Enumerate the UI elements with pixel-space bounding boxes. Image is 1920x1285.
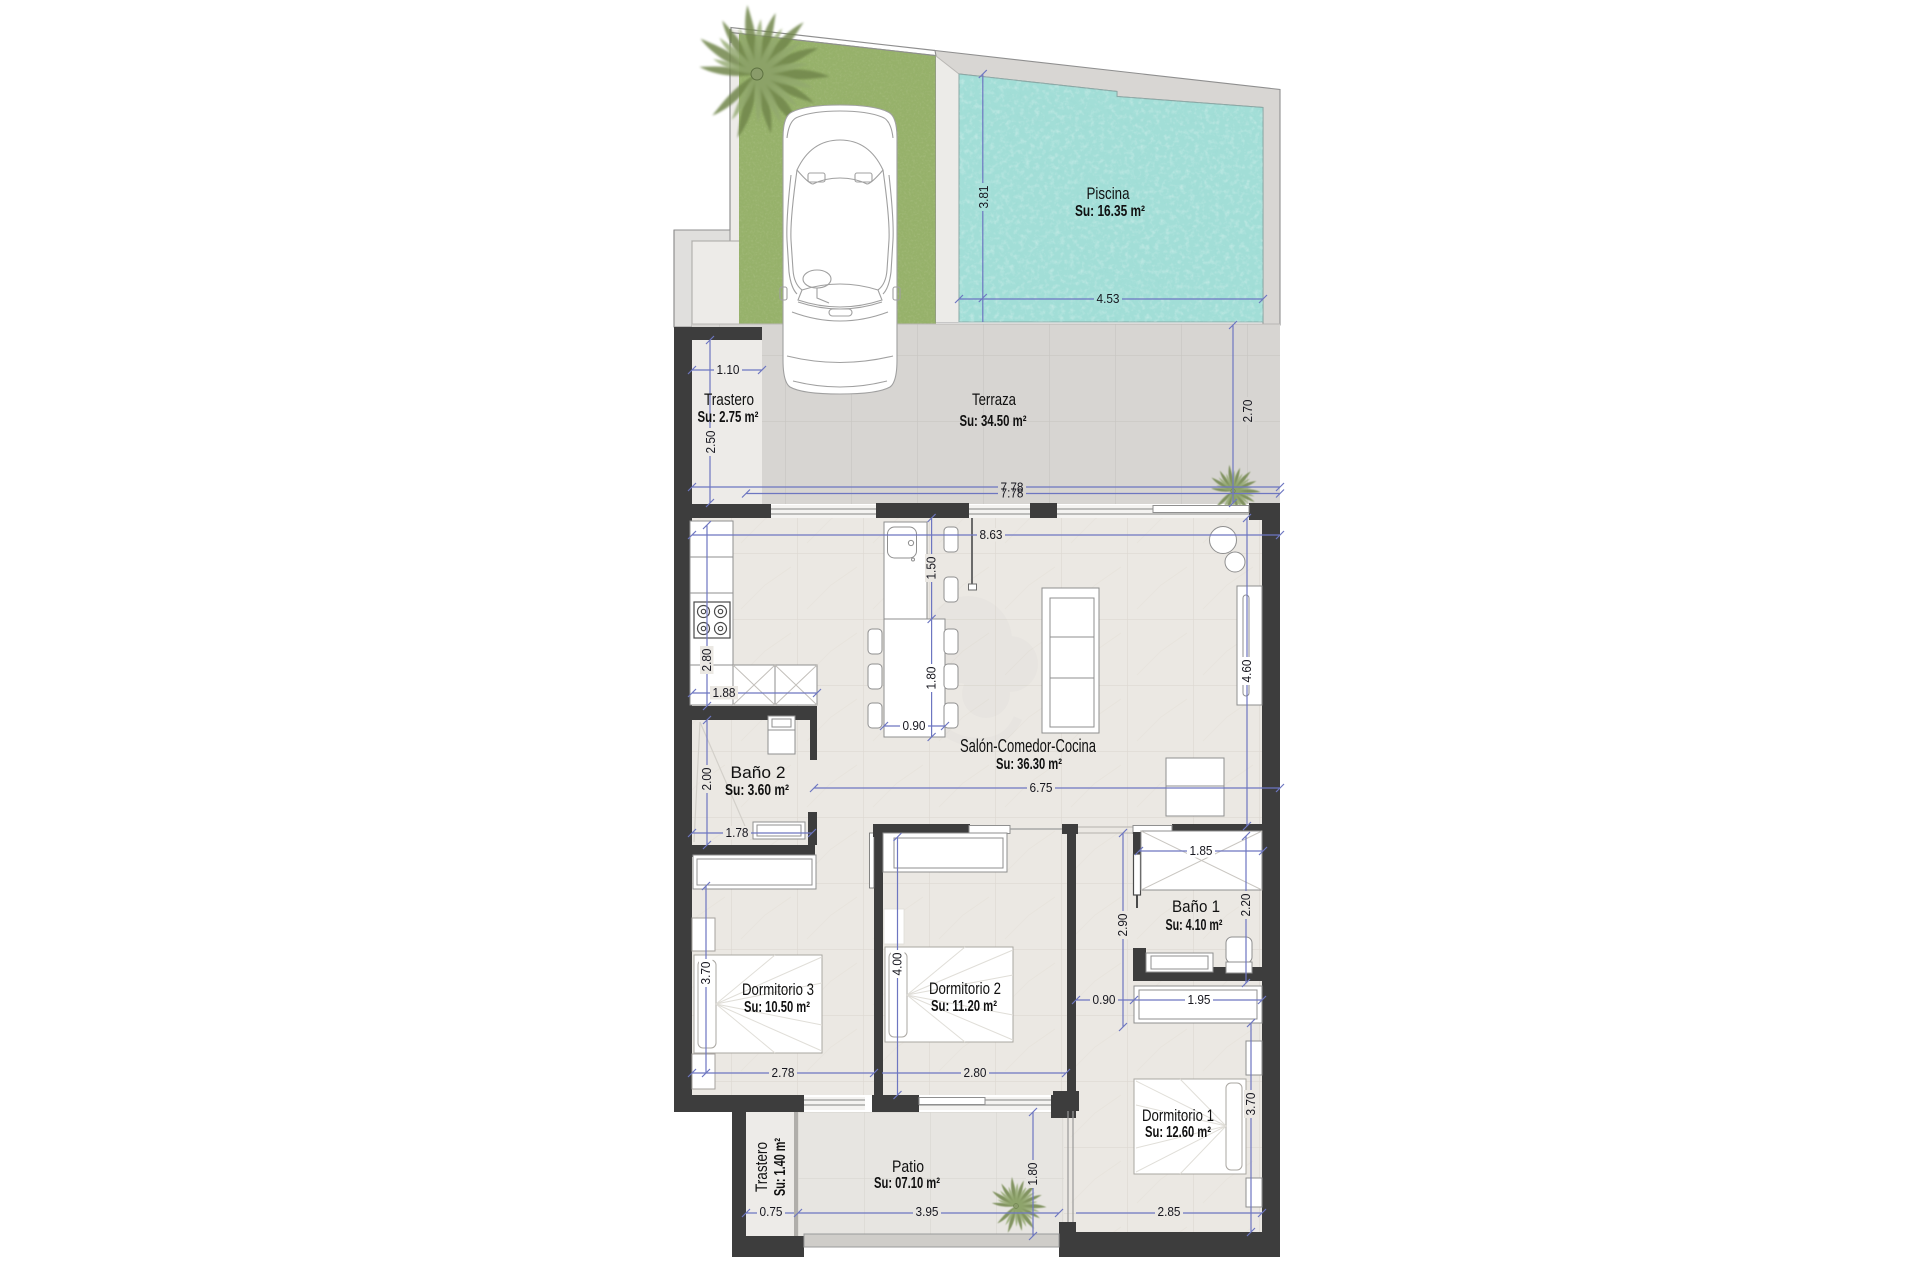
- svg-text:Su: 4.10 m²: Su: 4.10 m²: [1166, 917, 1223, 934]
- svg-text:2.78: 2.78: [772, 1066, 795, 1080]
- svg-text:2.00: 2.00: [700, 767, 714, 790]
- svg-text:1.85: 1.85: [1190, 844, 1213, 858]
- svg-text:6.75: 6.75: [1030, 781, 1053, 795]
- svg-text:Su: 11.20 m²: Su: 11.20 m²: [931, 998, 997, 1015]
- svg-text:1.88: 1.88: [713, 686, 736, 700]
- svg-text:4.60: 4.60: [1240, 659, 1254, 682]
- svg-text:Su: 10.50 m²: Su: 10.50 m²: [744, 999, 810, 1016]
- svg-text:2.80: 2.80: [964, 1066, 987, 1080]
- svg-text:2.50: 2.50: [704, 430, 718, 453]
- svg-text:Trastero: Trastero: [704, 390, 754, 409]
- svg-text:2.80: 2.80: [700, 648, 714, 671]
- svg-text:Dormitorio 1: Dormitorio 1: [1142, 1106, 1214, 1125]
- svg-text:0.90: 0.90: [1093, 993, 1116, 1007]
- svg-text:4.00: 4.00: [891, 952, 905, 975]
- svg-text:7.78: 7.78: [1001, 487, 1024, 501]
- svg-text:Terraza: Terraza: [972, 390, 1016, 409]
- svg-text:1.95: 1.95: [1188, 993, 1211, 1007]
- svg-text:4.53: 4.53: [1097, 292, 1120, 306]
- svg-text:Salón-Comedor-Cocina: Salón-Comedor-Cocina: [960, 736, 1097, 756]
- svg-text:1.10: 1.10: [717, 363, 740, 377]
- svg-text:Su: 2.75 m²: Su: 2.75 m²: [698, 409, 759, 426]
- svg-text:Su: 07.10 m²: Su: 07.10 m²: [874, 1175, 940, 1192]
- svg-text:Baño 1: Baño 1: [1172, 897, 1220, 916]
- svg-text:Dormitorio 3: Dormitorio 3: [742, 980, 814, 999]
- svg-text:Patio: Patio: [892, 1157, 924, 1176]
- svg-text:Baño 2: Baño 2: [731, 763, 786, 782]
- svg-text:2.70: 2.70: [1241, 399, 1255, 422]
- svg-text:1.80: 1.80: [1026, 1162, 1040, 1185]
- svg-text:3.81: 3.81: [977, 185, 991, 208]
- svg-text:Su: 36.30 m²: Su: 36.30 m²: [996, 756, 1062, 773]
- svg-text:Dormitorio 2: Dormitorio 2: [929, 979, 1001, 998]
- svg-text:2.20: 2.20: [1239, 893, 1253, 916]
- svg-text:Su: 12.60 m²: Su: 12.60 m²: [1145, 1124, 1211, 1141]
- svg-text:Trastero: Trastero: [752, 1142, 771, 1192]
- svg-text:Su: 1.40 m²: Su: 1.40 m²: [772, 1138, 789, 1196]
- svg-text:3.70: 3.70: [699, 961, 713, 984]
- svg-text:3.70: 3.70: [1244, 1092, 1258, 1115]
- svg-text:Su: 16.35 m²: Su: 16.35 m²: [1075, 203, 1145, 220]
- svg-text:Su: 3.60 m²: Su: 3.60 m²: [725, 782, 789, 799]
- svg-text:2.90: 2.90: [1116, 913, 1130, 936]
- svg-text:2.85: 2.85: [1158, 1205, 1181, 1219]
- svg-text:1.50: 1.50: [925, 556, 939, 579]
- svg-text:8.63: 8.63: [980, 528, 1003, 542]
- svg-text:1.78: 1.78: [726, 826, 749, 840]
- svg-text:1.80: 1.80: [925, 666, 939, 689]
- svg-text:3.95: 3.95: [916, 1205, 939, 1219]
- svg-text:0.75: 0.75: [760, 1205, 783, 1219]
- svg-text:Piscina: Piscina: [1087, 184, 1130, 203]
- svg-text:Su: 34.50 m²: Su: 34.50 m²: [960, 413, 1027, 430]
- svg-text:0.90: 0.90: [903, 719, 926, 733]
